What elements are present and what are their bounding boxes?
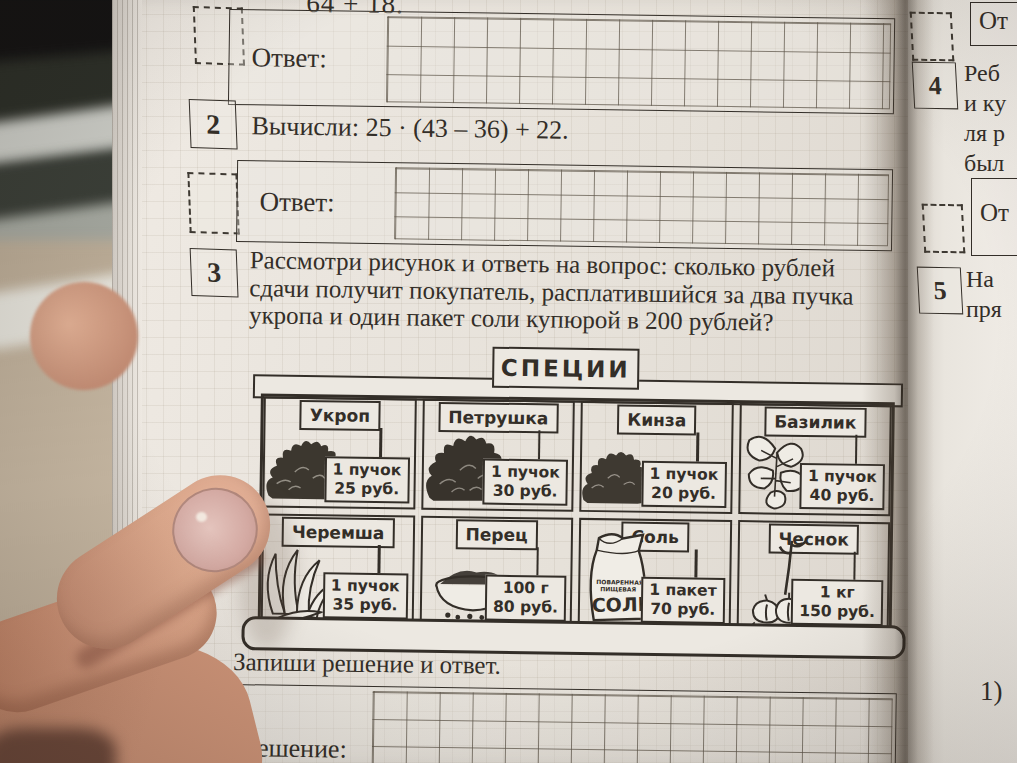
right-page-content: От 4 Реб и ку ля р был От 5 На пря 1) — [900, 0, 1017, 763]
price-tag: 1 пучок 25 руб. — [324, 456, 409, 503]
checkbox-square-2 — [187, 172, 239, 235]
spices-sign: СПЕЦИИ — [492, 347, 640, 390]
thumb-shadow-on-page — [238, 500, 296, 650]
plate-connector-line — [536, 547, 539, 577]
spices-cabinet: Укроп 1 пучок 25 руб. Петрушка — [258, 393, 895, 635]
answer-box-fragment: От — [970, 2, 1017, 46]
problem-4-number: 4 — [912, 62, 959, 110]
price-tag: 1 пакет 70 руб. — [641, 577, 725, 624]
price-value: 25 руб. — [332, 479, 401, 499]
price-tag: 1 кг 150 руб. — [791, 579, 883, 626]
price-qty: 1 пучок — [491, 462, 560, 482]
answer-box-1: Ответ: — [228, 9, 895, 114]
problem-2-statement: Вычисли: 25 · (43 – 36) + 22. — [251, 111, 568, 145]
problem-2-number: 2 — [189, 99, 238, 150]
answer-label-fragment: От — [979, 7, 1008, 35]
problem-4-text-fragment: был — [964, 150, 1004, 177]
price-tag: 1 пучок 40 руб. — [800, 462, 885, 509]
price-value: 30 руб. — [491, 481, 560, 501]
solution-box: Решение: — [230, 684, 897, 763]
problem-5-number: 5 — [917, 267, 964, 315]
price-qty: 1 кг — [799, 583, 875, 603]
answer-label: Ответ: — [229, 10, 384, 106]
plate-connector-line — [696, 433, 699, 463]
answer-grid-1 — [386, 16, 891, 109]
price-value: 35 руб. — [331, 595, 400, 615]
problem-5-text-fragment: На — [966, 266, 994, 293]
shelf-cell-salt: Соль ПОВАРЕННАЯ ПИЩЕВАЯ СОЛЬ 1 пакет 70 … — [578, 517, 732, 630]
price-value: 70 руб. — [649, 600, 717, 620]
problem-3-statement: Рассмотри рисунок и ответь на вопрос: ск… — [249, 246, 854, 337]
price-value: 40 руб. — [808, 486, 877, 506]
answer-grid-2 — [394, 167, 889, 246]
problem-4-text-fragment: ля р — [964, 120, 1005, 147]
item-name-plate: Перец — [455, 519, 537, 550]
problem-5-text-fragment: пря — [966, 296, 1002, 323]
item-name-plate: Кинза — [617, 404, 696, 435]
price-value: 20 руб. — [649, 483, 718, 503]
solution-label: Решение: — [231, 685, 370, 763]
shelf-cell-basil: Базилик 1 пучок 40 руб. — [738, 403, 892, 516]
plate-connector-line — [855, 435, 858, 465]
answer-label: Ответ: — [237, 161, 392, 243]
price-tag: 1 пучок 30 руб. — [483, 458, 568, 505]
write-solution-prompt: Запиши решение и ответ. — [233, 648, 501, 680]
shelf-cell-dill: Укроп 1 пучок 25 руб. — [262, 396, 416, 509]
price-qty: 1 пучок — [649, 464, 718, 484]
salt-bag-small-text: ПИЩЕВАЯ — [600, 585, 636, 593]
price-qty: 1 пучок — [808, 467, 877, 487]
plate-connector-line — [377, 545, 380, 575]
answer-label-fragment: От — [980, 199, 1009, 227]
photo-of-workbook-page: 64 + 18. Ответ: 2 Вычисли: 25 · (43 – 36… — [0, 0, 1017, 763]
price-value: 80 руб. — [493, 598, 558, 618]
shelf-cell-garlic: Чеснок 1 кг 150 руб. — [736, 520, 890, 633]
plate-connector-line — [379, 428, 382, 458]
checkbox-square — [910, 12, 955, 62]
price-value: 150 руб. — [799, 602, 875, 622]
shelf-cell-cilantro: Кинза 1 пучок 20 руб. — [579, 401, 733, 514]
price-qty: 1 пучок — [332, 460, 401, 480]
answer-box-fragment: От — [971, 178, 1017, 256]
answer-box-2: Ответ: — [236, 160, 893, 251]
price-qty: 1 пакет — [649, 581, 717, 601]
shelf-cell-parsley: Петрушка 1 пучок 30 руб. — [421, 399, 575, 512]
price-tag: 1 пучок 35 руб. — [322, 572, 407, 619]
problem-4-text-fragment: Реб — [964, 60, 1000, 87]
price-tag: 1 пучок 20 руб. — [641, 460, 726, 507]
problem-4-text-fragment: и ку — [964, 90, 1006, 117]
problem-3-number: 3 — [190, 248, 239, 298]
checkbox-square — [922, 204, 966, 254]
shelf-cell-pepper: Перец 100 г 80 руб. — [419, 515, 573, 628]
solution-grid — [372, 691, 893, 763]
plate-connector-line — [694, 549, 697, 579]
price-qty: 100 г — [493, 579, 558, 599]
printed-content: 64 + 18. Ответ: 2 Вычисли: 25 · (43 – 36… — [0, 0, 1017, 763]
price-qty: 1 пучок — [331, 576, 400, 596]
price-tag: 100 г 80 руб. — [485, 575, 567, 622]
item-name-plate: Укроп — [300, 400, 381, 431]
list-item-marker: 1) — [980, 676, 1003, 707]
plate-connector-line — [853, 551, 856, 581]
plate-connector-line — [538, 430, 541, 460]
